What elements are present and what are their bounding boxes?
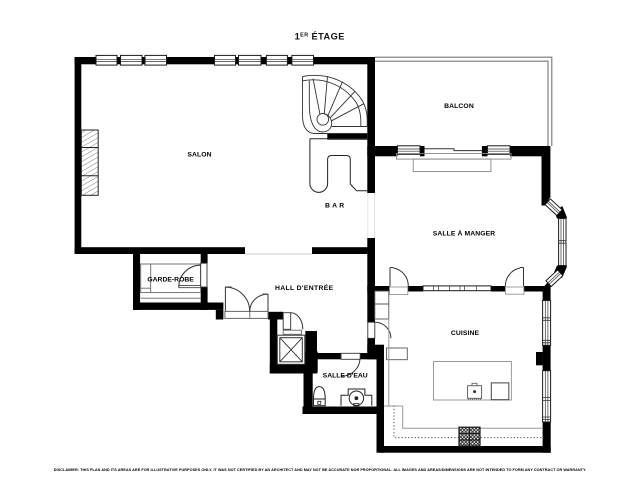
svg-text:SALON: SALON — [187, 152, 211, 159]
svg-text:BALCON: BALCON — [444, 103, 474, 110]
svg-text:HALL D'ENTRÉE: HALL D'ENTRÉE — [275, 283, 334, 292]
svg-text:BAR: BAR — [325, 203, 346, 210]
svg-text:GARDE-ROBE: GARDE-ROBE — [147, 276, 194, 283]
svg-text:DISCLAIMER: THIS PLAN AND ITS: DISCLAIMER: THIS PLAN AND ITS AREAS ARE … — [54, 468, 586, 472]
svg-text:CUISINE: CUISINE — [451, 330, 480, 337]
svg-text:SALLE À MANGER: SALLE À MANGER — [433, 228, 496, 237]
svg-text:SALLE D'EAU: SALLE D'EAU — [323, 372, 368, 379]
